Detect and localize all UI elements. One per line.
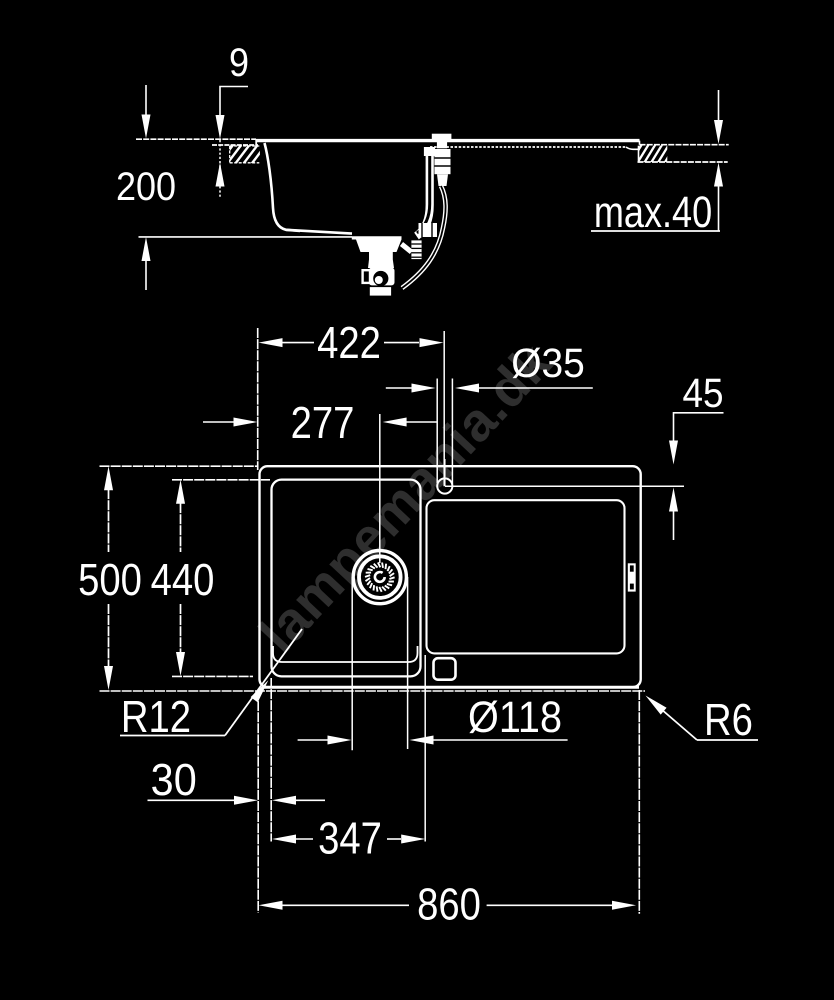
svg-text:347: 347 bbox=[318, 813, 382, 864]
svg-text:30: 30 bbox=[151, 754, 197, 805]
svg-text:860: 860 bbox=[417, 879, 481, 930]
svg-text:R6: R6 bbox=[704, 694, 753, 745]
svg-text:max.40: max.40 bbox=[594, 188, 712, 237]
svg-text:422: 422 bbox=[317, 317, 381, 368]
svg-text:45: 45 bbox=[682, 370, 723, 416]
svg-text:200: 200 bbox=[116, 165, 176, 209]
svg-text:Ø118: Ø118 bbox=[468, 693, 562, 742]
svg-text:277: 277 bbox=[291, 397, 355, 448]
svg-text:9: 9 bbox=[229, 41, 249, 85]
svg-text:500: 500 bbox=[78, 554, 142, 605]
svg-text:Ø35: Ø35 bbox=[511, 340, 585, 386]
svg-text:440: 440 bbox=[151, 554, 215, 605]
svg-text:R12: R12 bbox=[121, 691, 191, 742]
